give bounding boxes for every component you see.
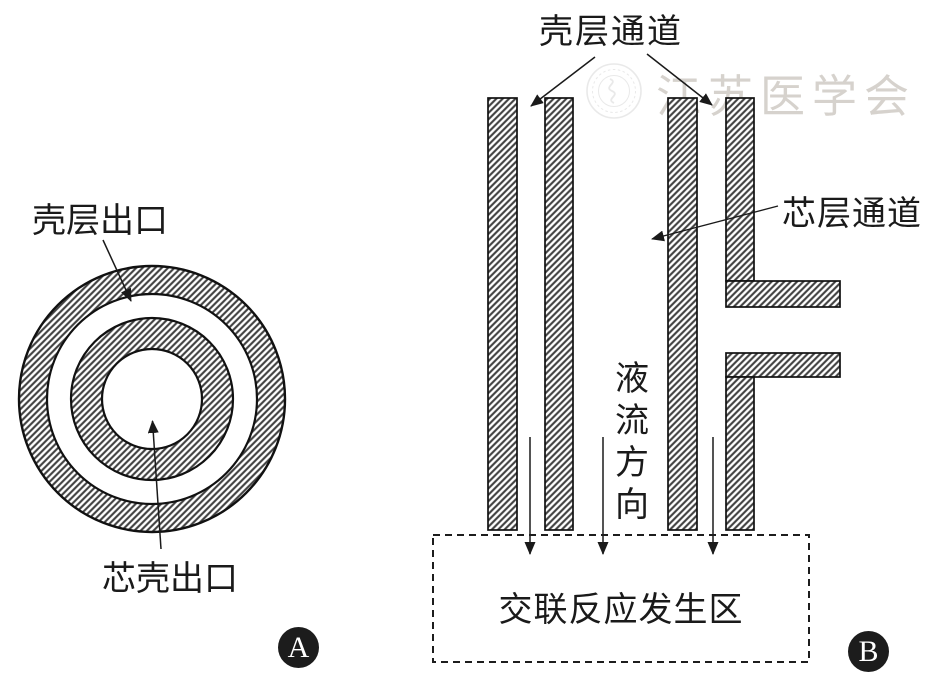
channel-wall-bar-4-upper [726, 98, 754, 281]
side-inlet-wall-bottom [726, 353, 840, 377]
side-inlet-wall-top [726, 281, 840, 307]
panel-b-badge: B [848, 631, 889, 672]
shell-channel-label: 壳层通道 [539, 4, 683, 53]
shell-outlet-label: 壳层出口 [32, 193, 168, 242]
channel-wall-bar-3 [668, 98, 697, 530]
watermark-seal-icon [587, 64, 641, 118]
coaxial-cross-section [19, 266, 285, 532]
core-shell-outlet-label: 芯壳出口 [102, 551, 238, 600]
channel-wall-bar-1 [488, 98, 517, 530]
reaction-zone-label: 交联反应发生区 [432, 582, 810, 631]
channel-walls [488, 98, 840, 530]
core-channel-label: 芯层通道 [782, 186, 922, 235]
channel-wall-bar-4-lower [726, 377, 754, 530]
core-outlet-opening [102, 349, 202, 449]
channel-wall-bar-2 [545, 98, 573, 530]
panel-a-badge: A [278, 627, 319, 668]
flow-direction-label: 液流方向 [613, 359, 651, 527]
figure-canvas: 江苏医学会 [0, 0, 928, 686]
